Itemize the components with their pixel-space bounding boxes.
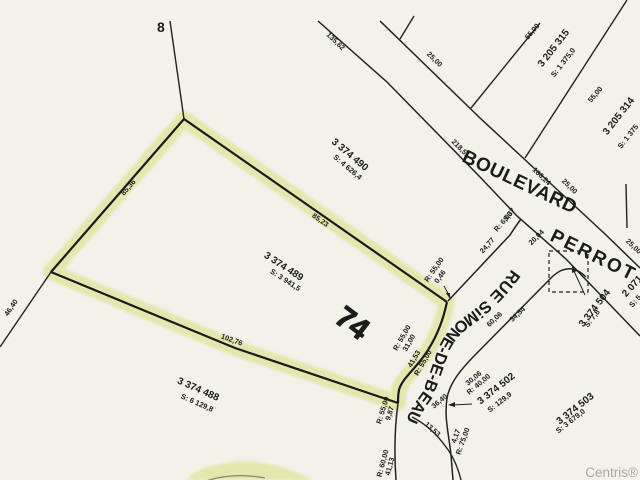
svg-text:8: 8 [157,19,165,35]
svg-text:Centris®: Centris® [585,465,638,480]
